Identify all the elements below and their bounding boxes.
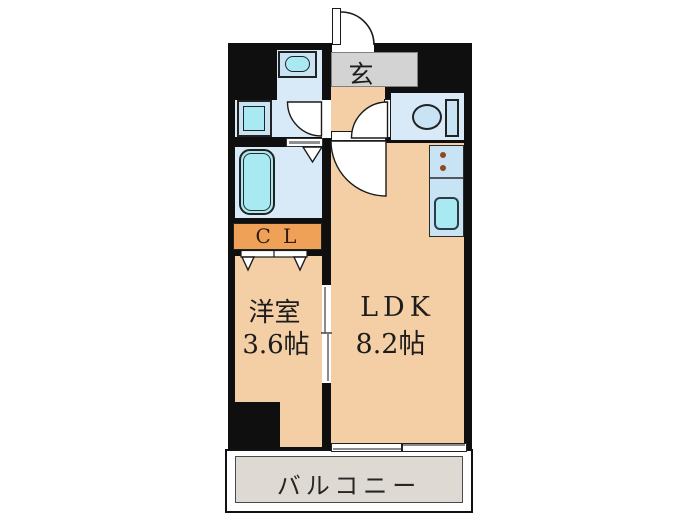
toilet-tank-icon bbox=[445, 99, 459, 137]
balcony-label: バルコニー bbox=[235, 466, 463, 501]
entrance-door-icon bbox=[332, 8, 341, 45]
entrance-door-arc-icon bbox=[341, 12, 374, 45]
washroom-doorway bbox=[322, 100, 331, 138]
bathtub-rim-icon bbox=[243, 153, 271, 211]
window-pane-left bbox=[333, 448, 402, 450]
kitchen-sink-icon bbox=[434, 197, 459, 230]
genkan-label: 玄 bbox=[331, 55, 391, 91]
bathroom-threshold-line bbox=[289, 141, 320, 144]
floor-plan: 玄 C L 洋室 3.6帖 LDK 8.2帖 バルコニー bbox=[0, 0, 700, 525]
washbasin-bowl-icon bbox=[285, 56, 310, 72]
closet-label: C L bbox=[233, 224, 322, 248]
western-room-size-label: 3.6帖 bbox=[231, 324, 321, 361]
toilet-bowl-icon bbox=[412, 104, 442, 130]
ldk-size-label: 8.2帖 bbox=[324, 322, 457, 361]
ldk-door-icon bbox=[331, 131, 386, 141]
ldk-label: LDK bbox=[331, 292, 464, 323]
western-room-extension bbox=[280, 402, 322, 447]
washing-machine-drum-icon bbox=[243, 106, 265, 131]
window-pane-right bbox=[402, 444, 465, 446]
